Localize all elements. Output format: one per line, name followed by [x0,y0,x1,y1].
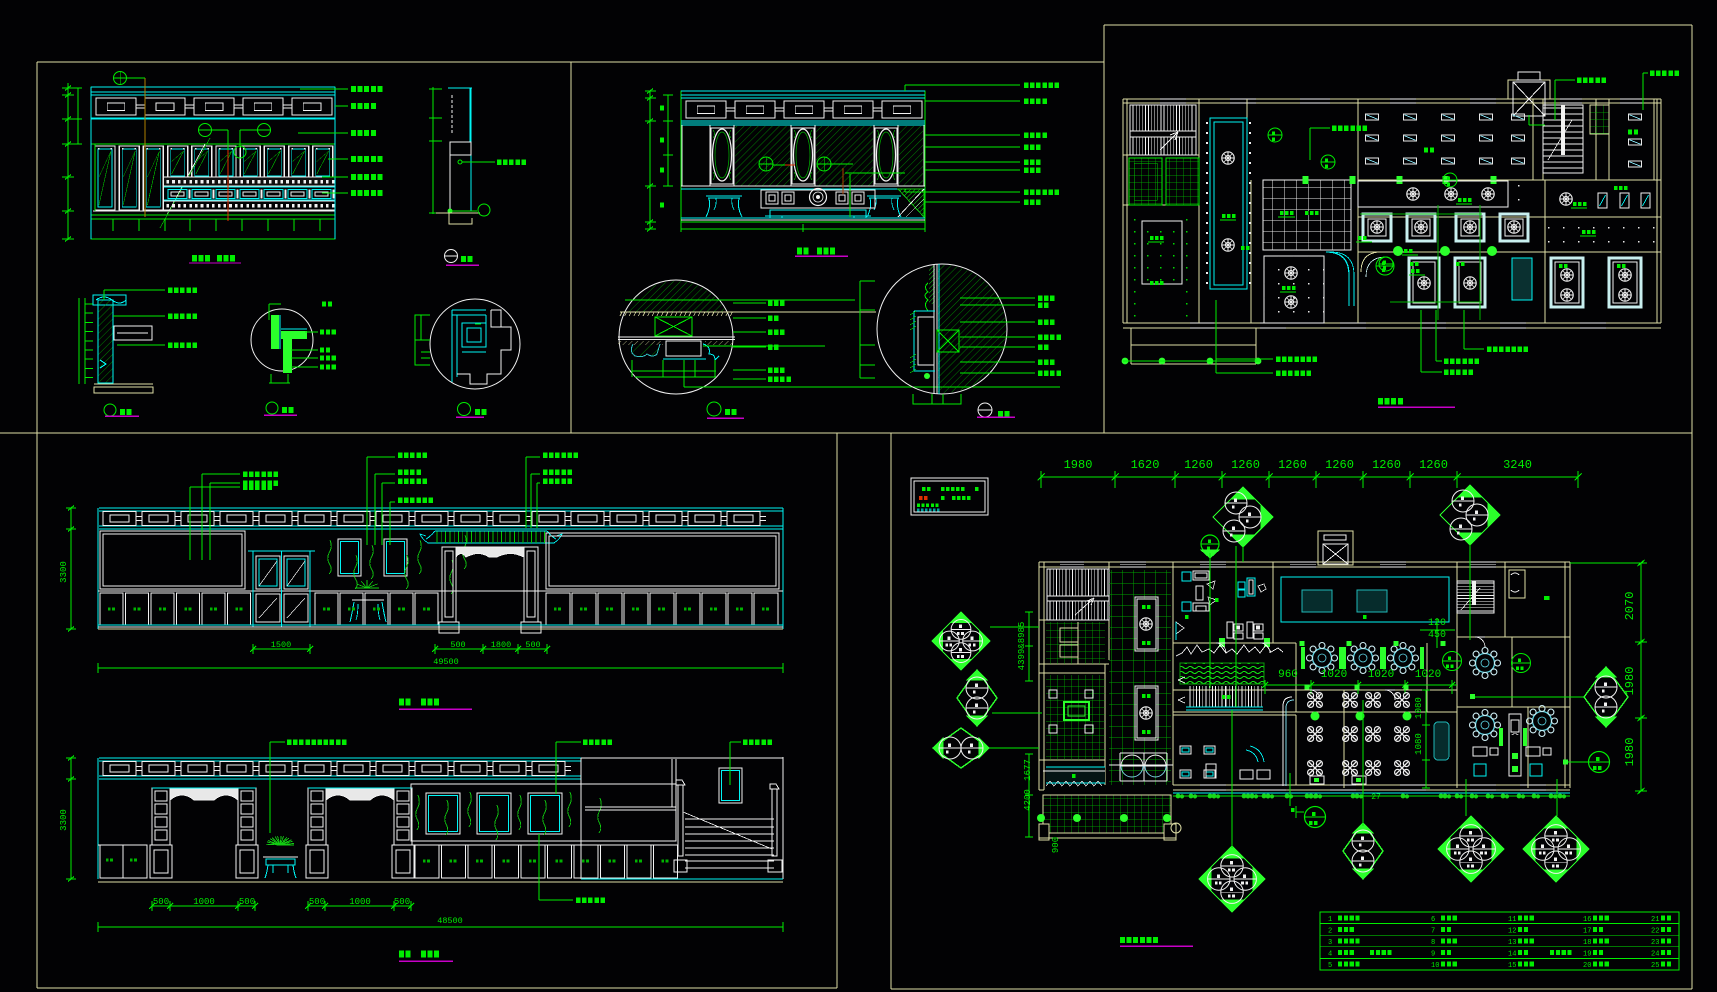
svg-text:3: 3 [1328,939,1332,947]
svg-text:1800: 1800 [491,640,511,650]
svg-text:500: 500 [525,640,540,650]
svg-text:1500: 1500 [271,640,291,650]
svg-text:1020: 1020 [1415,669,1441,681]
svg-text:1980: 1980 [1623,738,1637,767]
svg-text:500: 500 [309,897,325,907]
svg-text:3300: 3300 [59,561,69,583]
svg-text:7: 7 [1431,927,1435,935]
svg-text:22: 22 [1651,927,1659,935]
svg-text:24: 24 [1651,951,1659,959]
svg-text:1080: 1080 [1414,733,1424,755]
svg-text:11: 11 [1508,916,1516,924]
svg-text:500: 500 [153,897,169,907]
svg-text:23: 23 [1651,939,1659,947]
svg-text:19: 19 [1583,951,1591,959]
svg-text:1020: 1020 [1368,669,1394,681]
svg-text:1080: 1080 [1414,697,1424,719]
svg-text:1260: 1260 [1419,458,1448,472]
svg-text:12: 12 [1508,927,1516,935]
svg-text:16: 16 [1583,916,1591,924]
svg-text:1: 1 [1328,916,1332,924]
svg-text:1980: 1980 [1064,458,1093,472]
svg-text:1620: 1620 [1131,458,1160,472]
svg-text:8: 8 [1431,939,1435,947]
svg-text:20: 20 [1583,962,1591,970]
svg-text:500: 500 [450,640,465,650]
svg-text:14: 14 [1508,951,1516,959]
svg-text:2: 2 [1328,927,1332,935]
svg-text:6: 6 [1431,916,1435,924]
svg-text:4200: 4200 [1023,789,1033,811]
svg-text:1000: 1000 [349,897,371,907]
svg-text:900: 900 [1051,837,1061,853]
svg-text:500: 500 [239,897,255,907]
svg-text:3300: 3300 [59,809,69,831]
svg-text:5: 5 [1328,962,1332,970]
svg-text:1980: 1980 [1623,667,1637,696]
svg-text:13: 13 [1508,939,1516,947]
svg-text:1260: 1260 [1372,458,1401,472]
svg-text:1677: 1677 [1023,759,1033,781]
svg-text:48500: 48500 [437,916,463,926]
svg-text:1260: 1260 [1278,458,1307,472]
svg-text:1260: 1260 [1231,458,1260,472]
svg-text:3240: 3240 [1503,458,1532,472]
svg-text:9: 9 [1431,951,1435,959]
svg-text:27: 27 [1371,793,1381,802]
svg-text:18: 18 [1583,939,1591,947]
svg-text:15: 15 [1508,962,1516,970]
svg-text:2070: 2070 [1623,592,1637,621]
svg-text:49500: 49500 [433,657,459,667]
svg-text:17: 17 [1583,927,1591,935]
svg-text:1260: 1260 [1325,458,1354,472]
svg-text:21: 21 [1651,916,1659,924]
svg-text:25: 25 [1651,962,1659,970]
svg-text:1260: 1260 [1184,458,1213,472]
svg-text:1020: 1020 [1321,669,1347,681]
svg-text:500: 500 [394,897,410,907]
svg-text:960: 960 [1278,669,1298,681]
svg-text:1000: 1000 [193,897,215,907]
svg-text:4: 4 [1328,951,1332,959]
svg-text:10: 10 [1431,962,1439,970]
